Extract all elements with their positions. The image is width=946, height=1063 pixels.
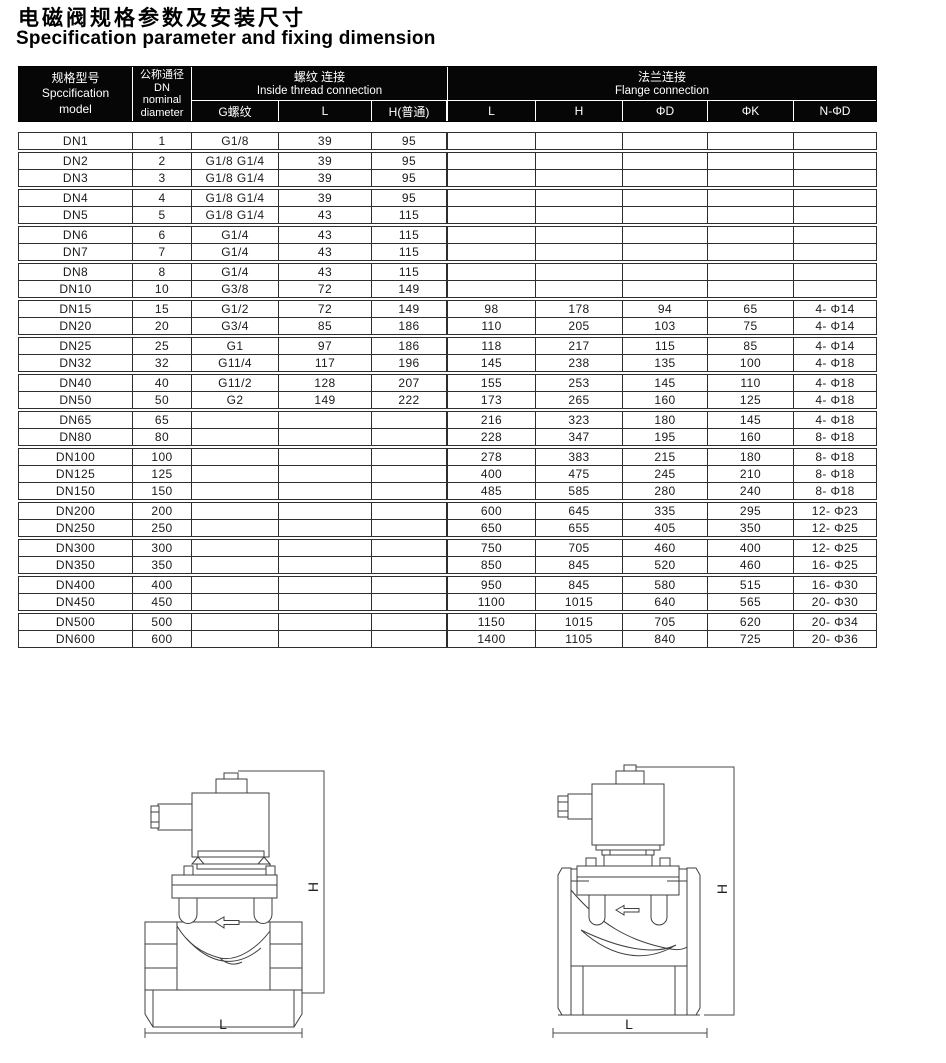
cell-fk bbox=[708, 153, 794, 169]
cell-fh: 1015 bbox=[536, 594, 623, 610]
cell-fd: 94 bbox=[623, 301, 708, 317]
cell-fnd: 8- Φ18 bbox=[794, 429, 876, 445]
cell-g: G3/8 bbox=[192, 281, 279, 297]
cell-dn: 65 bbox=[133, 412, 192, 428]
cell-tl: 85 bbox=[279, 318, 372, 334]
cell-fk bbox=[708, 264, 794, 280]
cell-fd: 215 bbox=[623, 449, 708, 465]
valve-body bbox=[145, 898, 302, 1027]
cell-fh: 655 bbox=[536, 520, 623, 536]
row-group: DN4040G11/21282071552531451104- Φ18DN505… bbox=[18, 374, 877, 409]
cell-th: 149 bbox=[372, 301, 448, 317]
cell-fh bbox=[536, 207, 623, 223]
header-col-flange-d: ΦD bbox=[623, 101, 708, 121]
cell-model: DN20 bbox=[19, 318, 133, 334]
cell-fk: 515 bbox=[708, 577, 794, 593]
cell-fd: 195 bbox=[623, 429, 708, 445]
header-col-flange-h: H bbox=[536, 101, 623, 121]
dimension-l: L bbox=[553, 1016, 707, 1038]
table-row: DN1251254004752452108- Φ18 bbox=[19, 465, 876, 482]
cell-fnd bbox=[794, 281, 876, 297]
cell-fl: 118 bbox=[448, 338, 536, 354]
cell-fnd: 4- Φ14 bbox=[794, 301, 876, 317]
cell-model: DN10 bbox=[19, 281, 133, 297]
spec-sheet-page: 电磁阀规格参数及安装尺寸 Specification parameter and… bbox=[0, 0, 946, 1063]
cell-model: DN6 bbox=[19, 227, 133, 243]
row-group: DN5005001150101570562020- Φ34DN600600140… bbox=[18, 613, 877, 648]
cell-dn: 80 bbox=[133, 429, 192, 445]
cell-fh: 1015 bbox=[536, 614, 623, 630]
cell-fnd: 12- Φ25 bbox=[794, 520, 876, 536]
table-row: DN65652163231801454- Φ18 bbox=[19, 412, 876, 428]
cell-dn: 350 bbox=[133, 557, 192, 573]
cell-fh bbox=[536, 170, 623, 186]
cell-tl bbox=[279, 412, 372, 428]
header-col-flange-nd: N-ΦD bbox=[794, 101, 876, 121]
cell-th bbox=[372, 577, 448, 593]
cell-fnd: 20- Φ34 bbox=[794, 614, 876, 630]
cell-fl: 228 bbox=[448, 429, 536, 445]
cell-g bbox=[192, 577, 279, 593]
cell-tl bbox=[279, 503, 372, 519]
cell-fd: 180 bbox=[623, 412, 708, 428]
cell-fl: 98 bbox=[448, 301, 536, 317]
cell-tl bbox=[279, 540, 372, 556]
table-row: DN6006001400110584072520- Φ36 bbox=[19, 630, 876, 647]
cell-tl bbox=[279, 631, 372, 647]
cell-fl: 110 bbox=[448, 318, 536, 334]
cell-fk bbox=[708, 207, 794, 223]
cell-model: DN32 bbox=[19, 355, 133, 371]
cell-g: G1/8 G1/4 bbox=[192, 207, 279, 223]
cell-fl: 278 bbox=[448, 449, 536, 465]
row-group: DN1515G1/2721499817894654- Φ14DN2020G3/4… bbox=[18, 300, 877, 335]
cell-fnd: 12- Φ25 bbox=[794, 540, 876, 556]
cell-th bbox=[372, 557, 448, 573]
table-row: DN44G1/8 G1/43995 bbox=[19, 190, 876, 206]
cell-g bbox=[192, 594, 279, 610]
header-col-flange-l: L bbox=[448, 101, 536, 121]
cell-th: 186 bbox=[372, 318, 448, 334]
header-model-en2: model bbox=[59, 102, 92, 118]
header-thread-group: 螺纹 连接 Inside thread connection bbox=[192, 67, 448, 101]
cell-fk bbox=[708, 190, 794, 206]
cell-fd: 580 bbox=[623, 577, 708, 593]
cell-g: G3/4 bbox=[192, 318, 279, 334]
table-row: DN22G1/8 G1/43995 bbox=[19, 153, 876, 169]
cell-fnd: 4- Φ18 bbox=[794, 375, 876, 391]
cell-fnd: 16- Φ25 bbox=[794, 557, 876, 573]
cell-g: G1/8 bbox=[192, 133, 279, 149]
cell-th: 115 bbox=[372, 227, 448, 243]
cell-fnd: 8- Φ18 bbox=[794, 449, 876, 465]
cell-model: DN600 bbox=[19, 631, 133, 647]
cell-fnd: 4- Φ18 bbox=[794, 355, 876, 371]
cell-fl bbox=[448, 227, 536, 243]
cell-fl: 650 bbox=[448, 520, 536, 536]
cell-fl: 850 bbox=[448, 557, 536, 573]
cell-dn: 10 bbox=[133, 281, 192, 297]
header-thread-cn: 螺纹 连接 bbox=[294, 70, 345, 85]
cell-model: DN5 bbox=[19, 207, 133, 223]
dim-h-label: H bbox=[714, 884, 730, 894]
cell-tl bbox=[279, 429, 372, 445]
cell-tl bbox=[279, 577, 372, 593]
flow-direction-arrow bbox=[616, 906, 639, 916]
table-row: DN88G1/443115 bbox=[19, 264, 876, 280]
cell-g: G11/2 bbox=[192, 375, 279, 391]
cell-tl: 117 bbox=[279, 355, 372, 371]
cell-g bbox=[192, 520, 279, 536]
cell-fd bbox=[623, 190, 708, 206]
row-group: DN11G1/83995 bbox=[18, 132, 877, 150]
header-dn-l3: nominal bbox=[143, 94, 182, 107]
header-col-thread-l: L bbox=[279, 101, 372, 121]
cell-fd: 245 bbox=[623, 466, 708, 482]
cell-fl: 1100 bbox=[448, 594, 536, 610]
cell-fnd: 8- Φ18 bbox=[794, 483, 876, 499]
cell-fd bbox=[623, 133, 708, 149]
coil-connector bbox=[158, 804, 192, 830]
flanged-valve-drawing: H bbox=[526, 748, 816, 1063]
cell-fd: 405 bbox=[623, 520, 708, 536]
table-row: DN4040G11/21282071552531451104- Φ18 bbox=[19, 375, 876, 391]
cell-fh: 383 bbox=[536, 449, 623, 465]
cell-fk: 620 bbox=[708, 614, 794, 630]
cell-dn: 20 bbox=[133, 318, 192, 334]
cell-fnd bbox=[794, 153, 876, 169]
cell-dn: 400 bbox=[133, 577, 192, 593]
cell-th: 115 bbox=[372, 264, 448, 280]
table-row: DN55G1/8 G1/443115 bbox=[19, 206, 876, 223]
cell-g: G1/4 bbox=[192, 264, 279, 280]
cell-fl: 173 bbox=[448, 392, 536, 408]
cell-g: G11/4 bbox=[192, 355, 279, 371]
cell-model: DN500 bbox=[19, 614, 133, 630]
table-row: DN2525G197186118217115854- Φ14 bbox=[19, 338, 876, 354]
cell-model: DN350 bbox=[19, 557, 133, 573]
cell-model: DN1 bbox=[19, 133, 133, 149]
spec-table-header: 规格型号 Spccification model 公称通径 DN nominal… bbox=[18, 66, 877, 122]
bottom-frame bbox=[558, 966, 700, 1015]
cell-g bbox=[192, 429, 279, 445]
cell-fl: 485 bbox=[448, 483, 536, 499]
table-row: DN40040095084558051516- Φ30 bbox=[19, 577, 876, 593]
cell-fk: 725 bbox=[708, 631, 794, 647]
cell-g bbox=[192, 557, 279, 573]
cell-fh: 645 bbox=[536, 503, 623, 519]
cell-fnd: 4- Φ14 bbox=[794, 318, 876, 334]
row-group: DN20020060064533529512- Φ23DN25025065065… bbox=[18, 502, 877, 537]
cell-tl bbox=[279, 520, 372, 536]
cell-model: DN7 bbox=[19, 244, 133, 260]
header-model-en: Spccification bbox=[42, 86, 109, 102]
header-thread-en: Inside thread connection bbox=[257, 85, 382, 98]
cell-dn: 50 bbox=[133, 392, 192, 408]
cell-g bbox=[192, 412, 279, 428]
cell-dn: 5 bbox=[133, 207, 192, 223]
header-col-flange-k: ΦK bbox=[708, 101, 794, 121]
cell-fk: 210 bbox=[708, 466, 794, 482]
header-flange-en: Flange connection bbox=[615, 85, 709, 98]
cell-fd: 103 bbox=[623, 318, 708, 334]
cell-th bbox=[372, 412, 448, 428]
cell-fh bbox=[536, 227, 623, 243]
cell-fl bbox=[448, 281, 536, 297]
cell-fl bbox=[448, 244, 536, 260]
cell-fh bbox=[536, 190, 623, 206]
cell-g bbox=[192, 449, 279, 465]
dim-l-label: L bbox=[625, 1016, 633, 1032]
cell-fl: 400 bbox=[448, 466, 536, 482]
cell-fnd bbox=[794, 170, 876, 186]
header-dn-l4: diameter bbox=[141, 107, 184, 120]
cell-th: 95 bbox=[372, 153, 448, 169]
cell-fd bbox=[623, 264, 708, 280]
cell-dn: 32 bbox=[133, 355, 192, 371]
cell-dn: 3 bbox=[133, 170, 192, 186]
cell-fd: 460 bbox=[623, 540, 708, 556]
cell-fnd: 4- Φ14 bbox=[794, 338, 876, 354]
cell-g: G1 bbox=[192, 338, 279, 354]
cell-fh: 217 bbox=[536, 338, 623, 354]
cell-fh: 238 bbox=[536, 355, 623, 371]
cell-th bbox=[372, 449, 448, 465]
cell-fl bbox=[448, 153, 536, 169]
left-flange bbox=[558, 868, 571, 1015]
table-row: DN5050G21492221732651601254- Φ18 bbox=[19, 391, 876, 408]
spec-table: 规格型号 Spccification model 公称通径 DN nominal… bbox=[18, 66, 877, 648]
cell-dn: 6 bbox=[133, 227, 192, 243]
cell-th: 95 bbox=[372, 170, 448, 186]
row-group: DN40040095084558051516- Φ30DN45045011001… bbox=[18, 576, 877, 611]
cell-fk: 125 bbox=[708, 392, 794, 408]
cell-model: DN250 bbox=[19, 520, 133, 536]
table-row: DN77G1/443115 bbox=[19, 243, 876, 260]
row-group: DN66G1/443115DN77G1/443115 bbox=[18, 226, 877, 261]
table-row: DN3232G11/41171961452381351004- Φ18 bbox=[19, 354, 876, 371]
cell-g bbox=[192, 466, 279, 482]
cell-fl: 750 bbox=[448, 540, 536, 556]
cell-model: DN100 bbox=[19, 449, 133, 465]
cell-g: G1/8 G1/4 bbox=[192, 190, 279, 206]
cell-fk: 65 bbox=[708, 301, 794, 317]
row-group: DN65652163231801454- Φ18DN80802283471951… bbox=[18, 411, 877, 446]
table-row: DN1515G1/2721499817894654- Φ14 bbox=[19, 301, 876, 317]
cell-fk bbox=[708, 133, 794, 149]
cell-fnd bbox=[794, 227, 876, 243]
cell-th bbox=[372, 614, 448, 630]
header-model-cn: 规格型号 bbox=[51, 71, 99, 87]
cell-g: G1/8 G1/4 bbox=[192, 170, 279, 186]
cell-tl: 149 bbox=[279, 392, 372, 408]
cell-model: DN65 bbox=[19, 412, 133, 428]
table-row: DN2020G3/485186110205103754- Φ14 bbox=[19, 317, 876, 334]
threaded-valve-drawing: H bbox=[120, 750, 382, 1062]
cell-th: 95 bbox=[372, 190, 448, 206]
cell-model: DN2 bbox=[19, 153, 133, 169]
cell-th: 115 bbox=[372, 207, 448, 223]
cell-dn: 40 bbox=[133, 375, 192, 391]
cell-fh: 323 bbox=[536, 412, 623, 428]
cell-dn: 500 bbox=[133, 614, 192, 630]
header-col-thread-h: H(普通) bbox=[372, 101, 448, 121]
table-row: DN20020060064533529512- Φ23 bbox=[19, 503, 876, 519]
cell-dn: 250 bbox=[133, 520, 192, 536]
cell-tl: 43 bbox=[279, 264, 372, 280]
cell-fh: 205 bbox=[536, 318, 623, 334]
coil-connector bbox=[568, 794, 592, 819]
cell-th: 196 bbox=[372, 355, 448, 371]
header-flange-group: 法兰连接 Flange connection bbox=[448, 67, 876, 101]
cell-tl bbox=[279, 557, 372, 573]
cell-tl: 43 bbox=[279, 207, 372, 223]
cell-fk: 400 bbox=[708, 540, 794, 556]
header-col-gthread: G螺纹 bbox=[192, 101, 279, 121]
cell-dn: 15 bbox=[133, 301, 192, 317]
spec-table-body: DN11G1/83995DN22G1/8 G1/43995DN33G1/8 G1… bbox=[18, 132, 877, 648]
cell-th: 207 bbox=[372, 375, 448, 391]
cell-dn: 150 bbox=[133, 483, 192, 499]
cell-fnd: 12- Φ23 bbox=[794, 503, 876, 519]
cell-fd: 520 bbox=[623, 557, 708, 573]
cell-th: 115 bbox=[372, 244, 448, 260]
cell-model: DN25 bbox=[19, 338, 133, 354]
cell-fd: 115 bbox=[623, 338, 708, 354]
cell-fh bbox=[536, 244, 623, 260]
cell-model: DN8 bbox=[19, 264, 133, 280]
cell-fh bbox=[536, 281, 623, 297]
cell-g: G1/8 G1/4 bbox=[192, 153, 279, 169]
cell-g: G1/4 bbox=[192, 244, 279, 260]
cell-fk bbox=[708, 244, 794, 260]
cell-tl bbox=[279, 449, 372, 465]
cell-fk: 160 bbox=[708, 429, 794, 445]
cell-fh: 845 bbox=[536, 557, 623, 573]
table-row: DN25025065065540535012- Φ25 bbox=[19, 519, 876, 536]
header-dn-cn: 公称通径 bbox=[140, 69, 184, 82]
cell-fh: 845 bbox=[536, 577, 623, 593]
cell-th bbox=[372, 503, 448, 519]
cell-fnd bbox=[794, 190, 876, 206]
dim-h-label: H bbox=[305, 882, 321, 892]
right-flange bbox=[687, 868, 700, 1015]
dim-l-label: L bbox=[219, 1016, 227, 1032]
cell-model: DN400 bbox=[19, 577, 133, 593]
cell-model: DN200 bbox=[19, 503, 133, 519]
cell-dn: 8 bbox=[133, 264, 192, 280]
cell-fnd bbox=[794, 244, 876, 260]
cell-tl bbox=[279, 466, 372, 482]
cell-g bbox=[192, 503, 279, 519]
row-group: DN44G1/8 G1/43995DN55G1/8 G1/443115 bbox=[18, 189, 877, 224]
cell-th bbox=[372, 631, 448, 647]
cell-fl: 950 bbox=[448, 577, 536, 593]
cell-fd: 145 bbox=[623, 375, 708, 391]
cell-tl: 72 bbox=[279, 301, 372, 317]
cell-model: DN15 bbox=[19, 301, 133, 317]
cell-dn: 1 bbox=[133, 133, 192, 149]
table-row: DN1001002783832151808- Φ18 bbox=[19, 449, 876, 465]
cell-fnd: 8- Φ18 bbox=[794, 466, 876, 482]
table-row: DN80802283471951608- Φ18 bbox=[19, 428, 876, 445]
cell-fl: 1400 bbox=[448, 631, 536, 647]
cell-g bbox=[192, 631, 279, 647]
cell-fl bbox=[448, 170, 536, 186]
table-row: DN5005001150101570562020- Φ34 bbox=[19, 614, 876, 630]
cell-fh: 585 bbox=[536, 483, 623, 499]
table-row: DN66G1/443115 bbox=[19, 227, 876, 243]
cell-g bbox=[192, 614, 279, 630]
cell-model: DN4 bbox=[19, 190, 133, 206]
cell-model: DN450 bbox=[19, 594, 133, 610]
cell-fd: 335 bbox=[623, 503, 708, 519]
cell-fnd: 16- Φ30 bbox=[794, 577, 876, 593]
cell-fl: 145 bbox=[448, 355, 536, 371]
cell-g bbox=[192, 483, 279, 499]
cell-fl bbox=[448, 133, 536, 149]
cell-th bbox=[372, 594, 448, 610]
cell-tl: 128 bbox=[279, 375, 372, 391]
cell-fl: 600 bbox=[448, 503, 536, 519]
cell-th bbox=[372, 466, 448, 482]
cell-tl: 39 bbox=[279, 190, 372, 206]
cell-tl bbox=[279, 614, 372, 630]
cell-th: 222 bbox=[372, 392, 448, 408]
cell-dn: 4 bbox=[133, 190, 192, 206]
header-dn: 公称通径 DN nominal diameter bbox=[133, 67, 192, 121]
cell-fk: 350 bbox=[708, 520, 794, 536]
cell-th: 95 bbox=[372, 133, 448, 149]
cell-dn: 25 bbox=[133, 338, 192, 354]
cell-fk: 110 bbox=[708, 375, 794, 391]
cell-th: 186 bbox=[372, 338, 448, 354]
cell-fnd bbox=[794, 133, 876, 149]
cell-fh bbox=[536, 153, 623, 169]
table-row: DN11G1/83995 bbox=[19, 133, 876, 149]
table-row: DN35035085084552046016- Φ25 bbox=[19, 556, 876, 573]
cell-fd bbox=[623, 281, 708, 297]
cell-fk: 85 bbox=[708, 338, 794, 354]
cell-th bbox=[372, 540, 448, 556]
cell-fd: 840 bbox=[623, 631, 708, 647]
cell-fl: 216 bbox=[448, 412, 536, 428]
cell-th bbox=[372, 520, 448, 536]
cell-tl: 39 bbox=[279, 133, 372, 149]
cell-fnd bbox=[794, 207, 876, 223]
cell-tl: 97 bbox=[279, 338, 372, 354]
cell-fk: 100 bbox=[708, 355, 794, 371]
row-group: DN22G1/8 G1/43995DN33G1/8 G1/43995 bbox=[18, 152, 877, 187]
cell-dn: 200 bbox=[133, 503, 192, 519]
cell-fd: 705 bbox=[623, 614, 708, 630]
cell-fl: 1150 bbox=[448, 614, 536, 630]
header-flange-cn: 法兰连接 bbox=[638, 70, 686, 85]
cell-fh: 705 bbox=[536, 540, 623, 556]
cell-model: DN125 bbox=[19, 466, 133, 482]
row-group: DN1001002783832151808- Φ18DN125125400475… bbox=[18, 448, 877, 500]
cell-fd bbox=[623, 227, 708, 243]
row-group: DN88G1/443115DN1010G3/872149 bbox=[18, 263, 877, 298]
cell-fl: 155 bbox=[448, 375, 536, 391]
page-subtitle: Specification parameter and fixing dimen… bbox=[16, 28, 436, 50]
table-row: DN30030075070546040012- Φ25 bbox=[19, 540, 876, 556]
cell-fh: 178 bbox=[536, 301, 623, 317]
row-group: DN30030075070546040012- Φ25DN35035085084… bbox=[18, 539, 877, 574]
cell-tl: 39 bbox=[279, 170, 372, 186]
valve-coil bbox=[151, 773, 270, 869]
cell-fh bbox=[536, 133, 623, 149]
